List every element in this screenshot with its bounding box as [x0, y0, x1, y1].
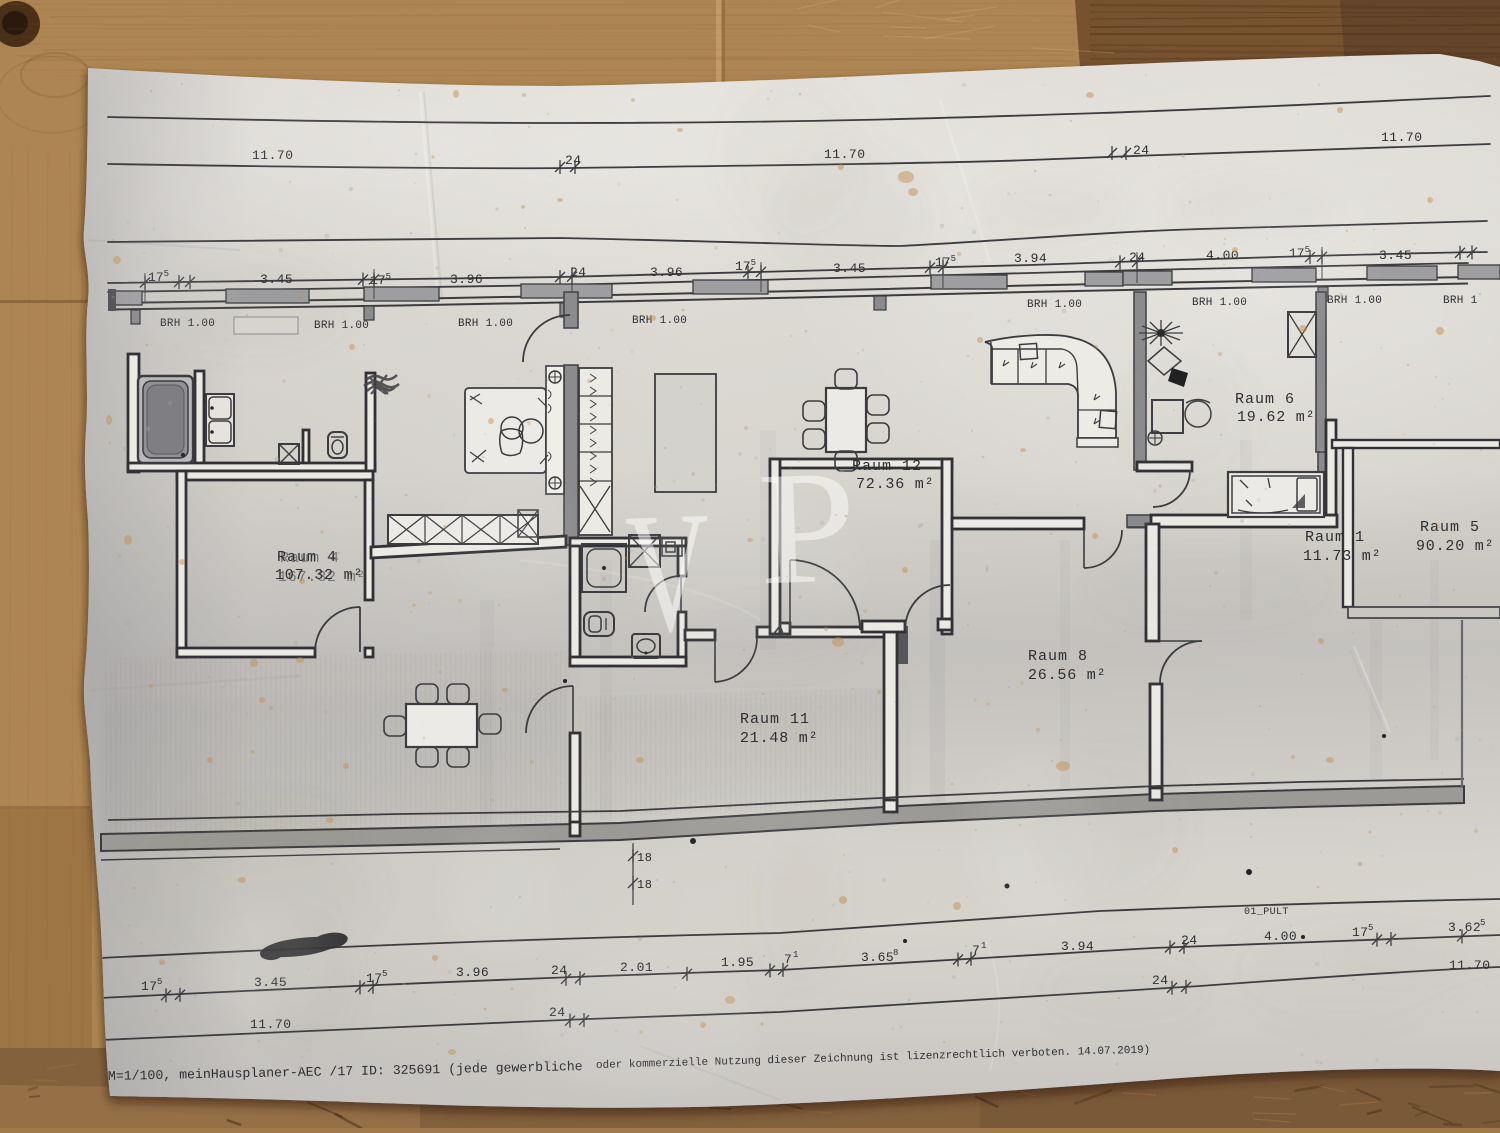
svg-text:3.65: 3.65 — [861, 950, 894, 965]
svg-text:Raum 8: Raum 8 — [1028, 648, 1088, 665]
svg-text:11.73 m²: 11.73 m² — [1303, 548, 1381, 565]
svg-text:Raum 1: Raum 1 — [1305, 529, 1365, 546]
svg-text:3.96: 3.96 — [650, 265, 683, 280]
svg-text:21.48 m²: 21.48 m² — [740, 730, 818, 747]
svg-text:5: 5 — [382, 969, 388, 979]
svg-text:Raum 11: Raum 11 — [740, 711, 810, 728]
svg-text:3.96: 3.96 — [450, 272, 483, 287]
svg-text:BRH 1.00: BRH 1.00 — [458, 318, 513, 330]
svg-text:Raum 4: Raum 4 — [280, 550, 340, 567]
svg-text:18: 18 — [637, 851, 652, 865]
svg-text:90.20 m²: 90.20 m² — [1416, 538, 1494, 555]
svg-text:18: 18 — [637, 878, 652, 892]
svg-text:BRH 1.00: BRH 1.00 — [1027, 299, 1082, 311]
svg-text:24: 24 — [565, 153, 582, 168]
svg-text:8: 8 — [893, 948, 899, 958]
svg-text:17: 17 — [141, 979, 158, 994]
svg-text:11.70: 11.70 — [1381, 130, 1423, 145]
svg-text:26.56 m²: 26.56 m² — [1028, 667, 1106, 684]
svg-text:BRH 1: BRH 1 — [1443, 295, 1478, 307]
svg-text:17: 17 — [366, 971, 383, 986]
svg-text:24: 24 — [1133, 143, 1150, 158]
svg-text:72.36 m²: 72.36 m² — [856, 476, 934, 493]
svg-text:Raum 5: Raum 5 — [1420, 519, 1480, 536]
svg-text:3.96: 3.96 — [456, 965, 489, 980]
svg-text:1.95: 1.95 — [721, 955, 754, 970]
svg-text:5: 5 — [157, 977, 163, 987]
svg-text:167.32 m²: 167.32 m² — [278, 569, 366, 586]
svg-text:3.45: 3.45 — [1379, 248, 1412, 263]
svg-text:Raum 12: Raum 12 — [852, 458, 922, 475]
svg-text:BRH 1.00: BRH 1.00 — [1192, 297, 1247, 309]
svg-text:1: 1 — [981, 941, 987, 951]
svg-text:01_PULT: 01_PULT — [1244, 907, 1289, 918]
svg-text:3.94: 3.94 — [1014, 251, 1047, 266]
svg-text:5: 5 — [1480, 918, 1486, 928]
svg-text:3.94: 3.94 — [1061, 939, 1094, 954]
svg-text:BRH 1.00: BRH 1.00 — [632, 315, 687, 327]
